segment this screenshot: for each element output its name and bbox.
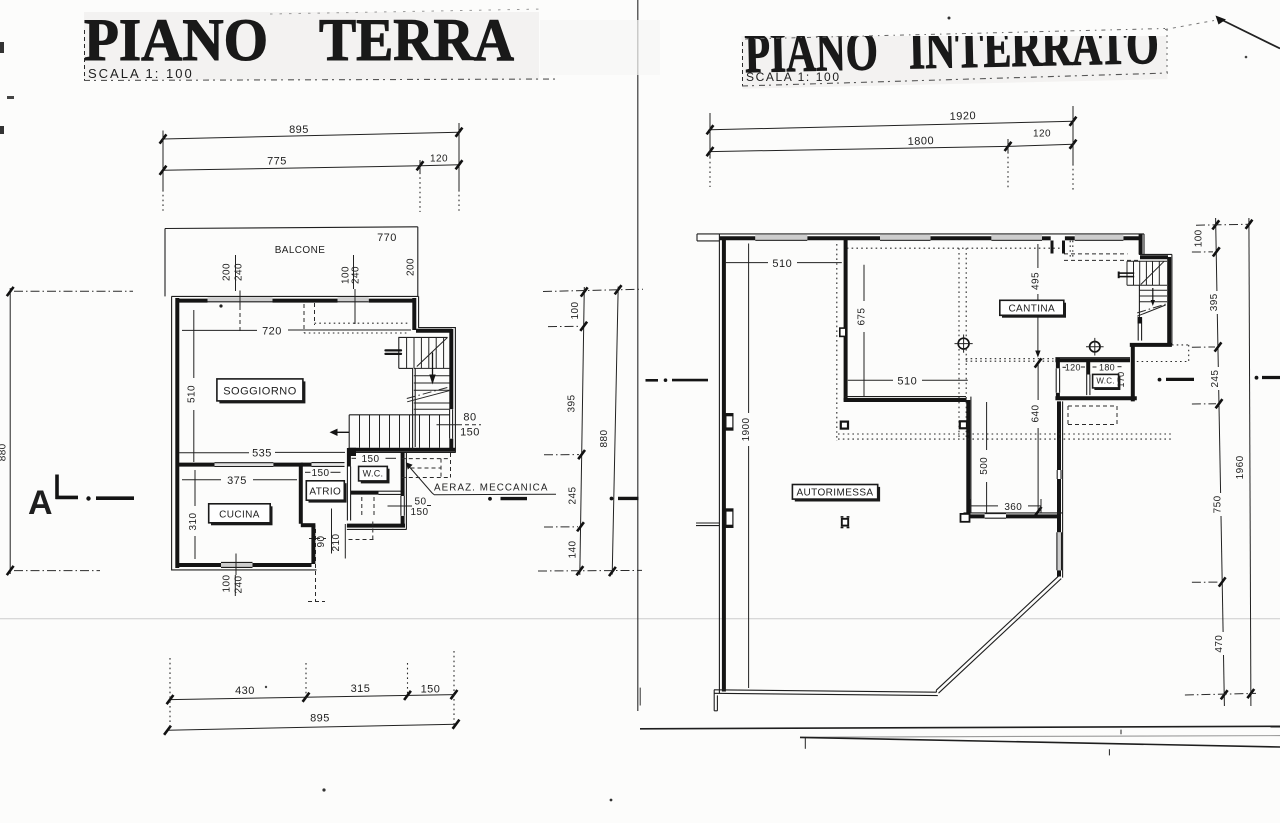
svg-text:50: 50 [415,497,427,508]
svg-text:SCALA 1: 100: SCALA 1: 100 [88,66,194,81]
svg-text:180: 180 [1099,362,1115,372]
svg-text:150: 150 [460,427,480,439]
svg-text:120: 120 [1033,129,1051,140]
svg-text:140: 140 [568,541,579,559]
svg-text:640: 640 [1031,405,1042,423]
svg-text:PIANO: PIANO [84,7,268,73]
svg-text:150: 150 [312,468,330,479]
svg-text:W.C.: W.C. [363,469,384,479]
svg-text:470: 470 [1214,635,1225,653]
svg-text:770: 770 [377,232,397,244]
svg-text:CANTINA: CANTINA [1008,303,1055,314]
svg-text:245: 245 [1210,370,1221,388]
svg-text:100: 100 [570,302,581,320]
svg-text:1920: 1920 [949,110,976,123]
svg-text:430: 430 [235,685,255,697]
svg-text:495: 495 [1030,272,1041,290]
svg-text:ATRIO: ATRIO [309,486,341,497]
svg-text:AERAZ. MECCANICA: AERAZ. MECCANICA [434,483,549,494]
svg-text:80: 80 [463,412,476,424]
svg-text:535: 535 [252,448,272,460]
svg-text:CUCINA: CUCINA [219,509,260,520]
svg-text:880: 880 [0,443,9,461]
svg-text:395: 395 [1209,293,1220,311]
svg-text:500: 500 [979,457,990,475]
svg-text:210: 210 [331,534,342,552]
svg-text:BALCONE: BALCONE [275,245,326,256]
svg-text:SOGGIORNO: SOGGIORNO [223,385,297,397]
svg-text:675: 675 [857,308,868,326]
svg-text:895: 895 [289,124,309,136]
svg-text:510: 510 [897,376,917,388]
svg-text:90: 90 [316,536,327,548]
svg-text:150: 150 [411,507,429,518]
svg-text:245: 245 [568,487,579,505]
svg-text:100: 100 [221,575,232,593]
svg-text:200: 200 [222,263,233,281]
svg-text:240: 240 [351,266,362,284]
svg-text:170: 170 [1116,372,1126,388]
svg-text:1960: 1960 [1235,455,1246,479]
svg-text:375: 375 [227,475,247,487]
svg-text:120: 120 [430,154,448,165]
svg-text:720: 720 [262,326,282,338]
svg-text:315: 315 [351,683,371,695]
svg-text:1800: 1800 [907,135,934,148]
svg-text:775: 775 [267,156,287,168]
svg-text:AUTORIMESSA: AUTORIMESSA [796,487,873,498]
svg-text:W.C.: W.C. [1096,377,1115,386]
svg-text:395: 395 [567,395,578,413]
svg-text:510: 510 [772,258,792,270]
svg-text:150: 150 [362,454,380,465]
svg-text:120: 120 [1065,363,1081,373]
svg-text:750: 750 [1213,495,1224,513]
svg-text:150: 150 [421,684,441,696]
svg-text:895: 895 [310,713,330,725]
svg-text:510: 510 [187,385,198,403]
svg-text:880: 880 [599,430,610,448]
svg-text:100: 100 [1193,229,1204,247]
svg-text:360: 360 [1004,502,1022,513]
svg-text:1900: 1900 [741,418,752,442]
svg-text:A: A [28,484,53,522]
svg-text:200: 200 [406,258,417,276]
svg-text:TERRA: TERRA [319,7,514,73]
svg-text:310: 310 [188,513,199,531]
svg-text:SCALA 1: 100: SCALA 1: 100 [746,70,841,84]
